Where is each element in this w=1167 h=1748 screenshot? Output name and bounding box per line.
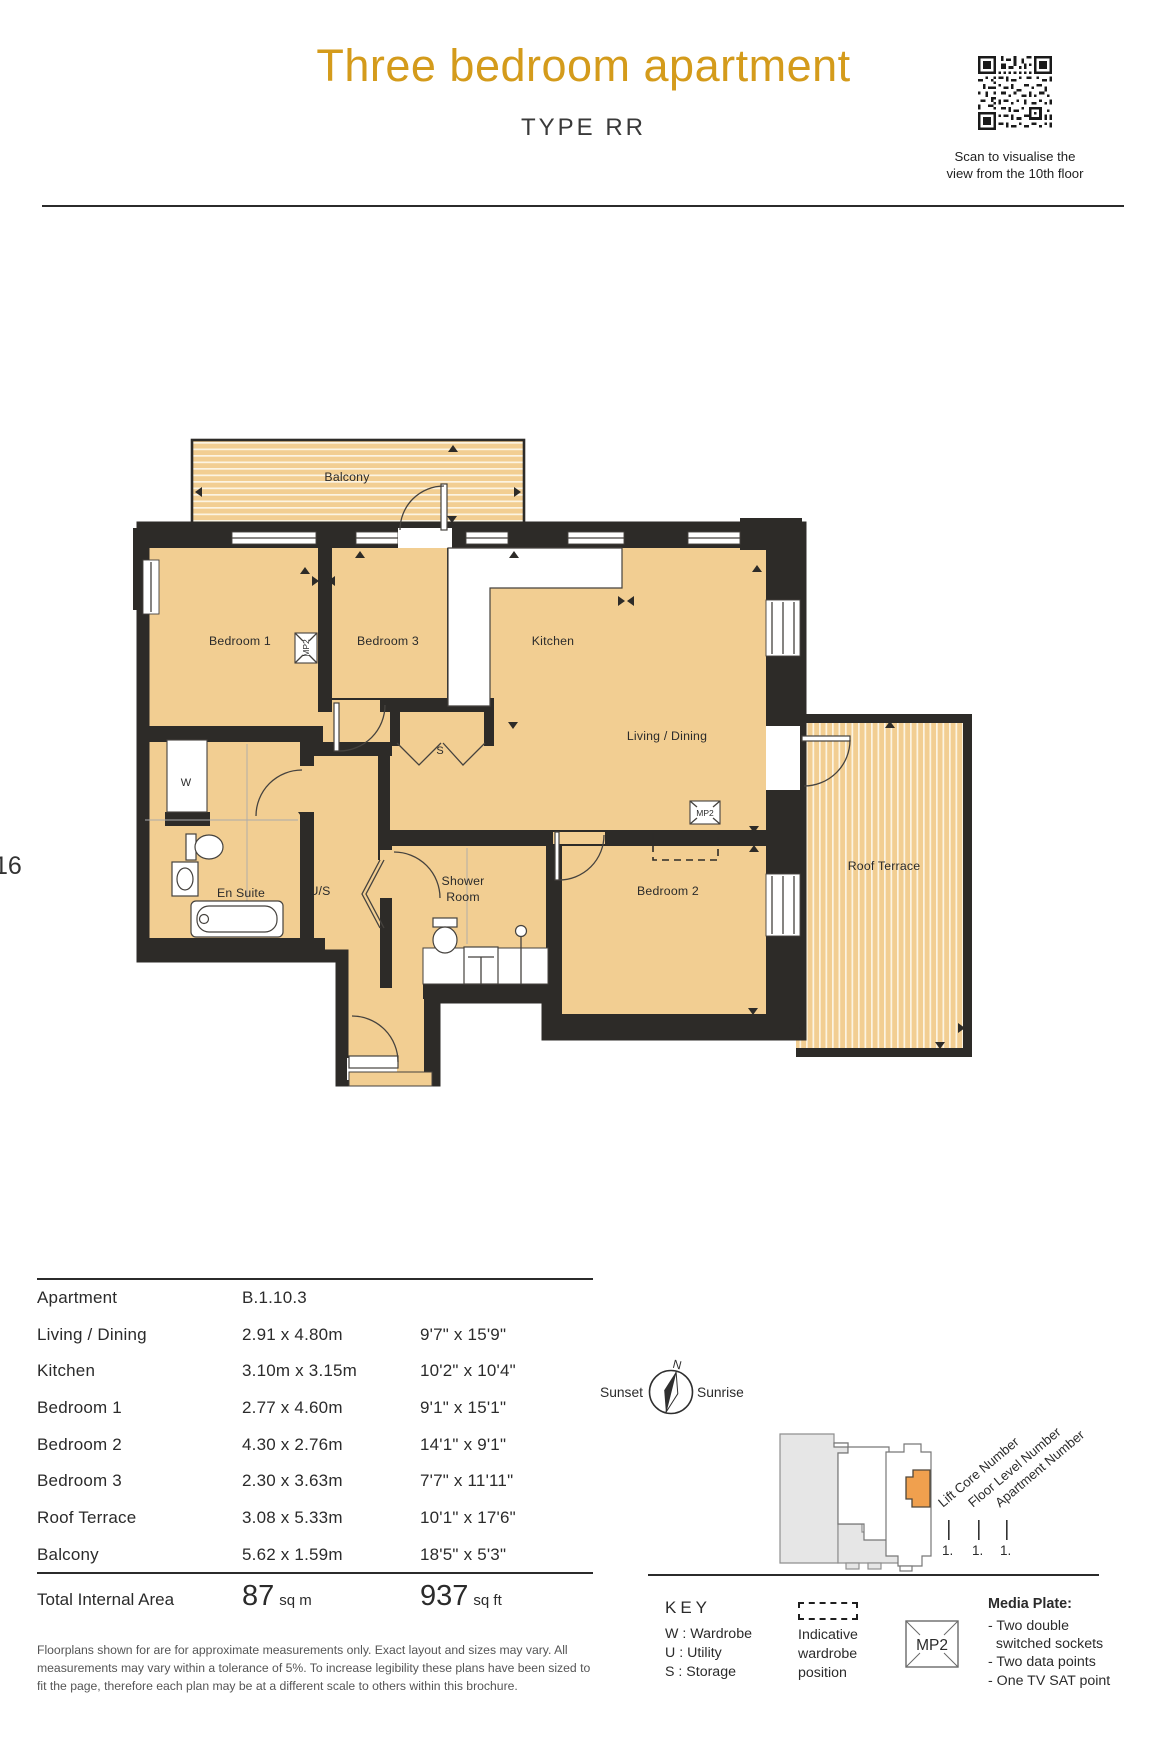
sunrise-label: Sunrise (697, 1385, 744, 1400)
header-divider (42, 205, 1124, 207)
locator-ticks (948, 1520, 1008, 1540)
key-item-utility: U : Utility (665, 1645, 722, 1661)
room-label-utility: U/S (309, 884, 330, 898)
mp2-legend-label: MP2 (916, 1637, 948, 1654)
key-item-storage: S : Storage (665, 1664, 736, 1680)
room-label-kitchen: Kitchen (532, 634, 574, 648)
room-label-living-dining: Living / Dining (627, 729, 707, 743)
wardrobe-closet (167, 740, 207, 812)
key-item-wardrobe: W : Wardrobe (665, 1626, 752, 1642)
room-label-bedroom2: Bedroom 2 (637, 884, 699, 898)
media-plate-items: - Two double switched sockets - Two data… (988, 1617, 1110, 1690)
room-label-roof-terrace: Roof Terrace (848, 859, 921, 873)
key-title: KEY (665, 1598, 711, 1618)
qr-caption: Scan to visualise the view from the 10th… (915, 148, 1115, 182)
svg-text:MP2: MP2 (696, 808, 714, 818)
floor-plan: MP2 MP2 Balcony Bedroom 1 Bedroom 3 Kitc… (0, 420, 1167, 1100)
roof-terrace-area (796, 714, 972, 1057)
room-label-ensuite: En Suite (217, 886, 265, 900)
media-plate-marker: MP2 (295, 633, 317, 663)
entrance-step (349, 1072, 432, 1086)
table-row: ApartmentB.1.10.3 (37, 1280, 593, 1317)
compass-north-label: N (671, 1357, 683, 1373)
locator-value-lift-core: 1. (942, 1543, 953, 1558)
mp2-legend: MP2 (906, 1621, 958, 1667)
media-plate-marker: MP2 (690, 801, 720, 824)
locator-value-floor-level: 1. (972, 1543, 983, 1558)
room-label-shower: Shower (442, 874, 485, 888)
locator-value-apartment: 1. (1000, 1543, 1011, 1558)
indicative-wardrobe-note: Indicative wardrobe position (798, 1626, 858, 1683)
room-label-storage: S (436, 745, 443, 757)
sunset-label: Sunset (600, 1385, 643, 1400)
media-plate-title: Media Plate: (988, 1596, 1072, 1612)
key-divider (648, 1574, 1099, 1576)
room-label-shower-2: Room (446, 890, 480, 904)
compass: N (650, 1356, 693, 1414)
indicative-wardrobe-icon (798, 1602, 858, 1620)
balcony-area (192, 440, 524, 528)
svg-text:MP2: MP2 (301, 639, 311, 657)
room-label-wardrobe: W (181, 777, 192, 789)
qr-code-icon (978, 56, 1052, 130)
room-label-bedroom1: Bedroom 1 (209, 634, 271, 648)
room-label-balcony: Balcony (324, 470, 370, 484)
room-label-bedroom3: Bedroom 3 (357, 634, 419, 648)
